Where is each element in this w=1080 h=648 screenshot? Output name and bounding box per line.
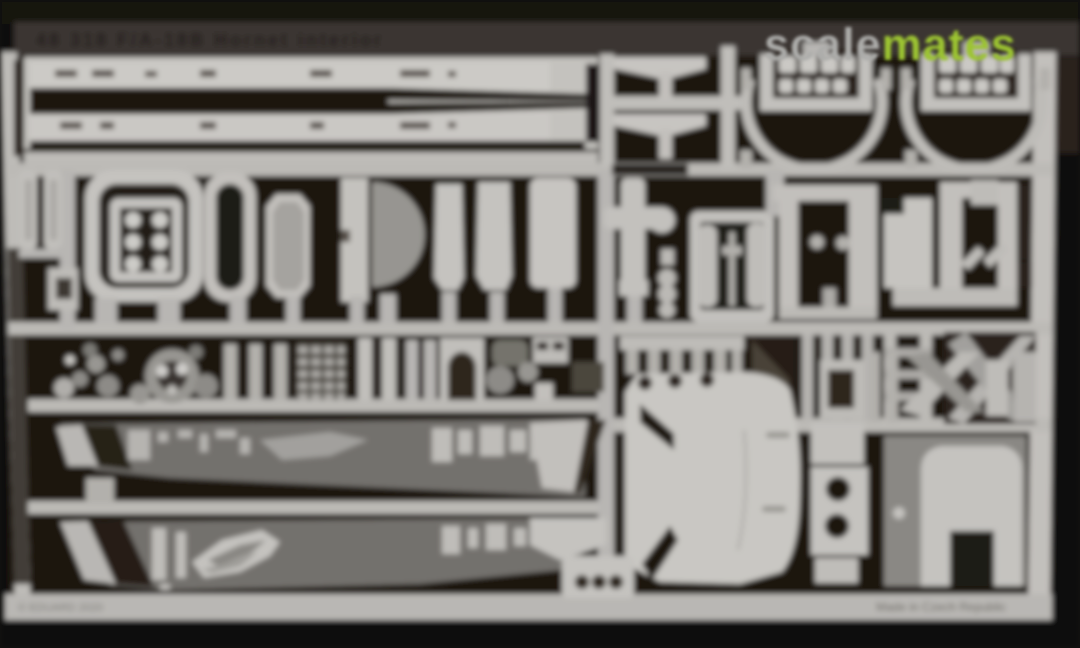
svg-text:scalemates: scalemates <box>764 19 1017 70</box>
